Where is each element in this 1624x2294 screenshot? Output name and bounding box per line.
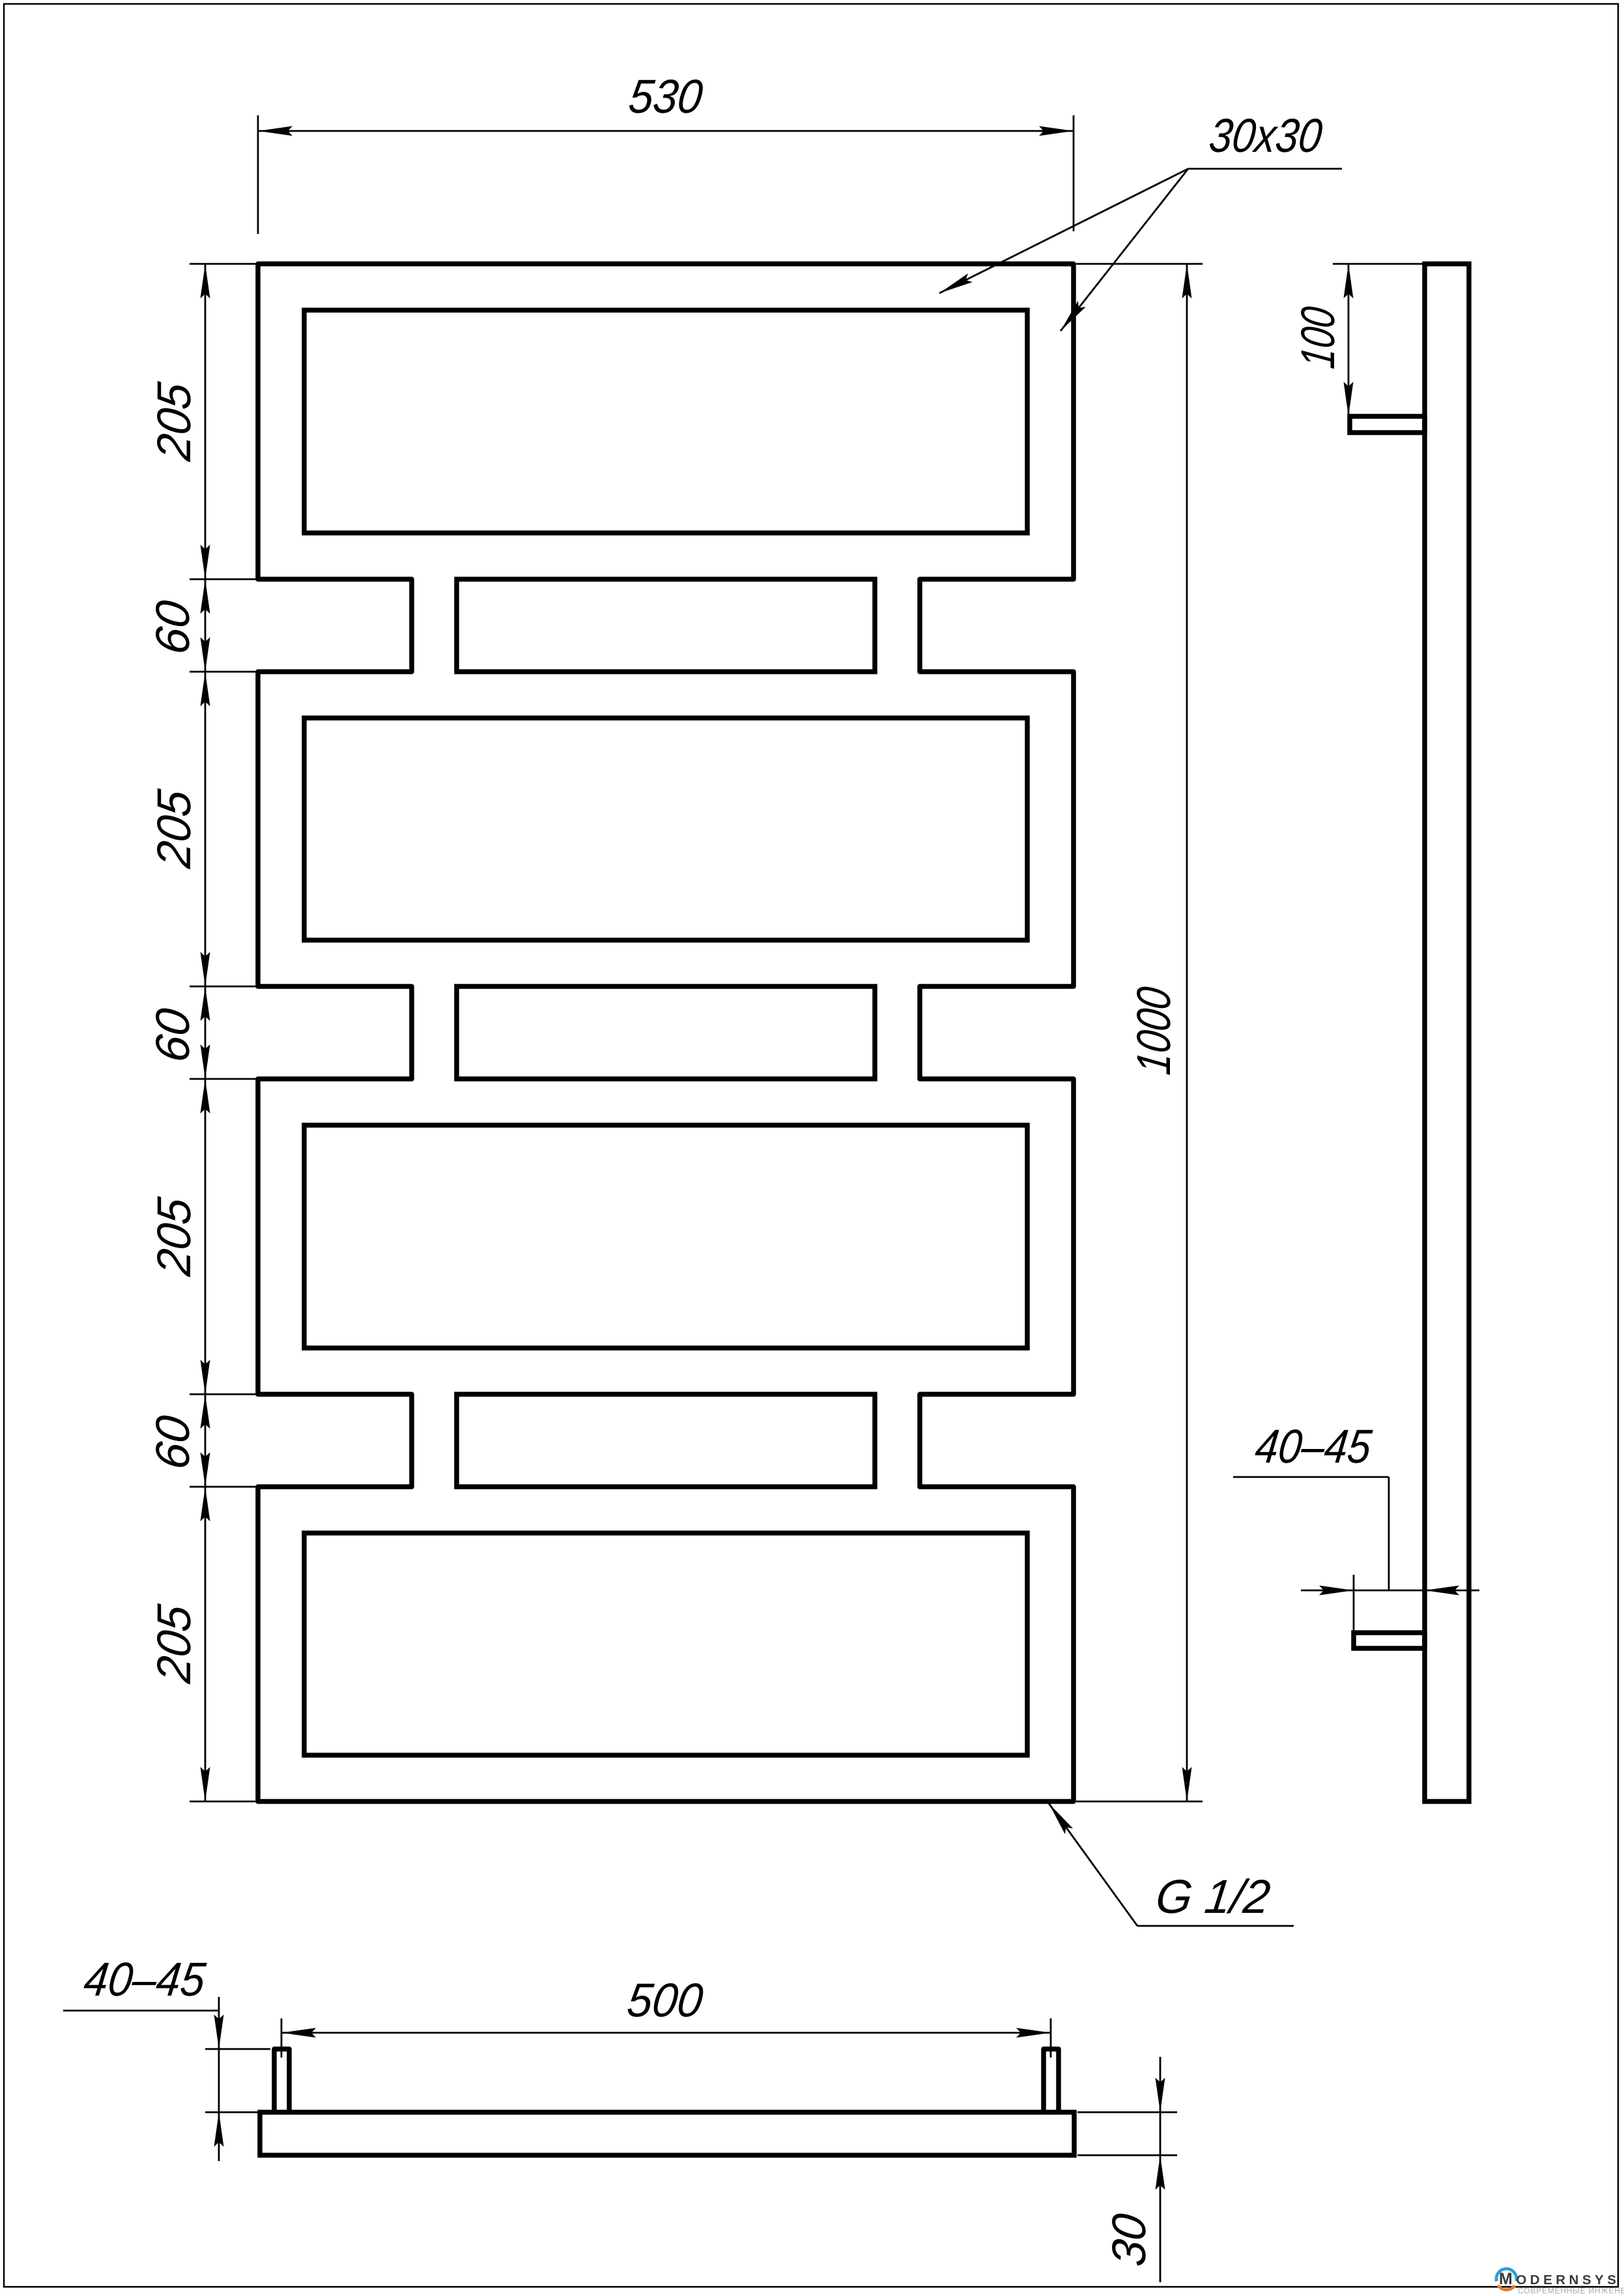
svg-text:СОВРЕМЕННЫЕ ИНЖЕНЕРНЫЕ СИСТЕМЫ: СОВРЕМЕННЫЕ ИНЖЕНЕРНЫЕ СИСТЕМЫ xyxy=(1518,2286,1624,2294)
svg-text:205: 205 xyxy=(147,380,201,464)
svg-text:530: 530 xyxy=(626,70,705,123)
svg-text:40–45: 40–45 xyxy=(81,1953,208,2006)
svg-text:100: 100 xyxy=(1291,304,1345,371)
svg-text:40–45: 40–45 xyxy=(1253,1420,1375,1473)
svg-text:30: 30 xyxy=(1102,2211,1156,2269)
svg-text:60: 60 xyxy=(146,597,199,657)
svg-text:205: 205 xyxy=(147,1602,201,1686)
svg-text:60: 60 xyxy=(146,1412,199,1472)
svg-text:205: 205 xyxy=(147,1195,201,1279)
svg-text:30x30: 30x30 xyxy=(1206,109,1325,162)
svg-text:205: 205 xyxy=(147,787,201,871)
svg-text:500: 500 xyxy=(625,1973,706,2027)
svg-text:60: 60 xyxy=(146,1005,199,1065)
svg-text:G 1/2: G 1/2 xyxy=(1153,1870,1273,1923)
svg-text:1000: 1000 xyxy=(1127,984,1180,1077)
svg-text:MODERNSYS: MODERNSYS xyxy=(1499,2270,1619,2288)
